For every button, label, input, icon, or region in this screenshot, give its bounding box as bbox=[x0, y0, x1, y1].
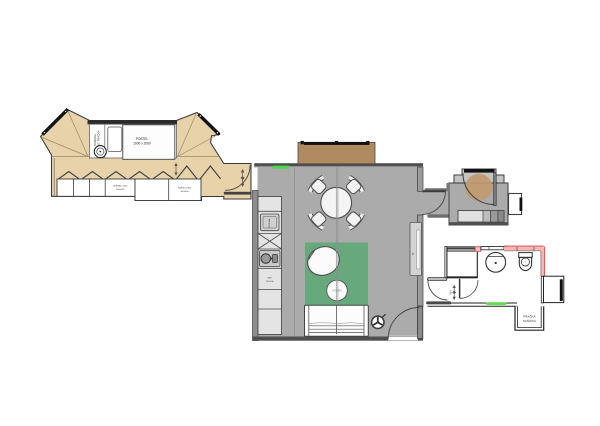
svg-text:TV: TV bbox=[412, 252, 415, 255]
svg-text:1000 x 2000: 1000 x 2000 bbox=[133, 142, 151, 146]
svg-text:KOMODA: KOMODA bbox=[93, 134, 97, 146]
svg-text:SKŘÍŇA v.2400: SKŘÍŇA v.2400 bbox=[113, 185, 128, 188]
svg-text:600: 600 bbox=[450, 290, 453, 295]
svg-text:DESKA: DESKA bbox=[266, 280, 274, 283]
svg-text:POSTEL: POSTEL bbox=[136, 137, 149, 141]
svg-text:STOLEK: STOLEK bbox=[332, 290, 342, 293]
svg-text:900x650: 900x650 bbox=[116, 189, 125, 191]
svg-text:SUŠIČKA: SUŠIČKA bbox=[523, 318, 536, 323]
svg-text:PRAČKA: PRAČKA bbox=[523, 314, 535, 319]
svg-text:VAR.: VAR. bbox=[267, 277, 272, 280]
svg-text:TROUBA: TROUBA bbox=[268, 218, 271, 228]
svg-text:SKŘÍŇ v.2400: SKŘÍŇ v.2400 bbox=[178, 187, 192, 190]
svg-text:900x600: 900x600 bbox=[181, 191, 190, 193]
